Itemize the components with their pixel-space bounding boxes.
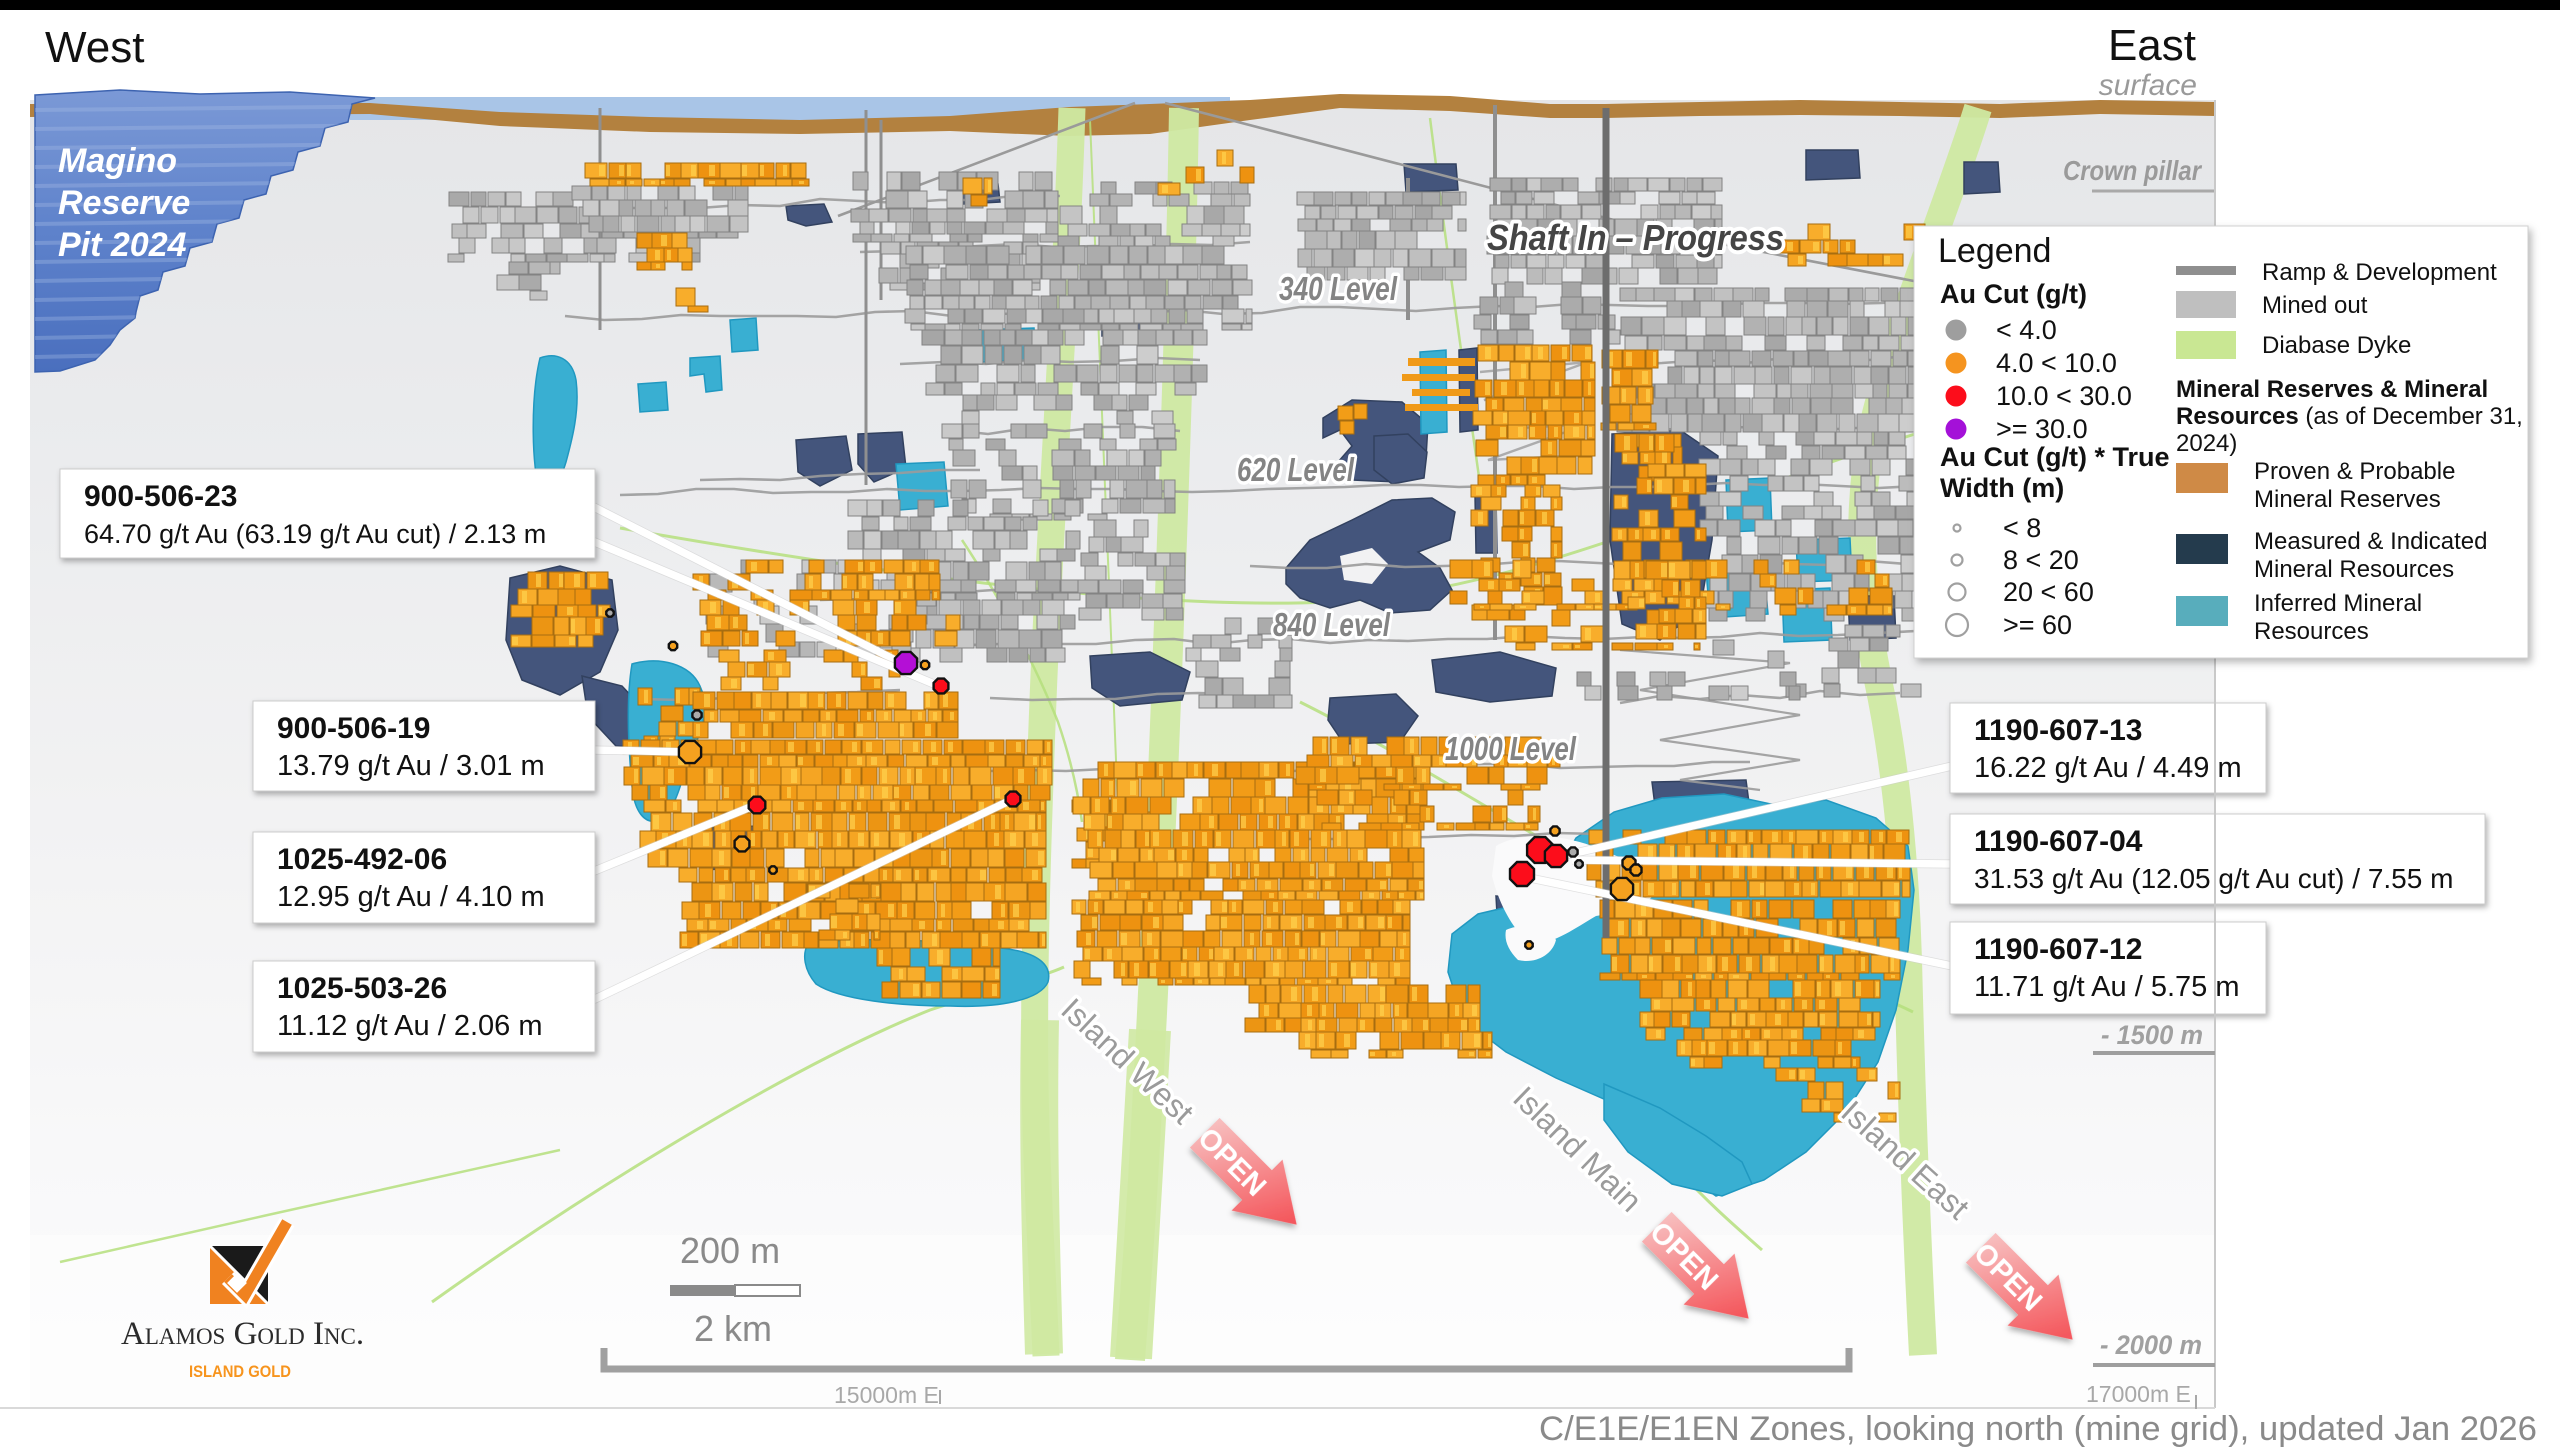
- svg-text:1190-607-13: 1190-607-13: [1974, 714, 2143, 747]
- svg-text:Resources: Resources: [2254, 618, 2369, 645]
- svg-text:1190-607-04: 1190-607-04: [1974, 825, 2143, 858]
- svg-text:620 Level: 620 Level: [1237, 451, 1355, 488]
- svg-text:East: East: [2108, 21, 2196, 70]
- svg-text:2024): 2024): [2176, 430, 2237, 457]
- svg-text:2 km: 2 km: [694, 1308, 772, 1349]
- svg-text:12.95 g/t Au / 4.10 m: 12.95 g/t Au / 4.10 m: [277, 881, 545, 913]
- svg-text:10.0 < 30.0: 10.0 < 30.0: [1996, 381, 2132, 411]
- svg-text:Magino: Magino: [58, 142, 177, 180]
- svg-text:West: West: [45, 23, 144, 72]
- svg-text:16.22 g/t Au / 4.49 m: 16.22 g/t Au / 4.49 m: [1974, 752, 2242, 784]
- svg-text:Resources (as of December 31,: Resources (as of December 31,: [2176, 403, 2523, 430]
- svg-text:900-506-19: 900-506-19: [277, 712, 430, 745]
- svg-text:64.70 g/t Au (63.19 g/t Au cut: 64.70 g/t Au (63.19 g/t Au cut) / 2.13 m: [84, 519, 546, 549]
- svg-text:15000m E: 15000m E: [834, 1382, 939, 1408]
- svg-text:Diabase Dyke: Diabase Dyke: [2262, 332, 2411, 359]
- svg-text:11.12 g/t Au / 2.06 m: 11.12 g/t Au / 2.06 m: [277, 1010, 542, 1042]
- svg-text:17000m E: 17000m E: [2086, 1381, 2191, 1407]
- svg-text:8 < 20: 8 < 20: [2003, 545, 2079, 575]
- svg-text:Mineral Reserves & Mineral: Mineral Reserves & Mineral: [2176, 376, 2488, 403]
- svg-text:Pit 2024: Pit 2024: [58, 226, 187, 264]
- svg-text:Legend: Legend: [1938, 232, 2051, 270]
- svg-text:< 4.0: < 4.0: [1996, 315, 2057, 345]
- svg-text:Inferred Mineral: Inferred Mineral: [2254, 590, 2422, 617]
- svg-text:< 8: < 8: [2003, 513, 2041, 543]
- svg-text:Reserve: Reserve: [58, 184, 190, 222]
- svg-text:1000 Level: 1000 Level: [1445, 730, 1577, 767]
- svg-text:Mineral Resources: Mineral Resources: [2254, 556, 2454, 583]
- svg-text:Proven & Probable: Proven & Probable: [2254, 458, 2455, 485]
- svg-text:1025-503-26: 1025-503-26: [277, 972, 447, 1005]
- svg-text:200 m: 200 m: [680, 1230, 780, 1271]
- svg-text:1025-492-06: 1025-492-06: [277, 843, 447, 876]
- svg-text:13.79 g/t Au / 3.01 m: 13.79 g/t Au / 3.01 m: [277, 750, 545, 782]
- svg-text:11.71 g/t Au / 5.75 m: 11.71 g/t Au / 5.75 m: [1974, 971, 2239, 1003]
- svg-text:ISLAND GOLD: ISLAND GOLD: [189, 1362, 291, 1381]
- svg-text:Au Cut (g/t): Au Cut (g/t): [1940, 279, 2087, 309]
- svg-text:900-506-23: 900-506-23: [84, 480, 237, 513]
- svg-text:>= 30.0: >= 30.0: [1996, 414, 2088, 444]
- svg-text:surface: surface: [2099, 69, 2197, 102]
- svg-text:1190-607-12: 1190-607-12: [1974, 933, 2143, 966]
- svg-text:20 < 60: 20 < 60: [2003, 577, 2094, 607]
- svg-text:31.53 g/t Au (12.05 g/t Au cut: 31.53 g/t Au (12.05 g/t Au cut) / 7.55 m: [1974, 863, 2453, 894]
- svg-text:C/E1E/E1EN Zones, looking nort: C/E1E/E1EN Zones, looking north (mine gr…: [1539, 1410, 2537, 1448]
- svg-text:Alamos Gold Inc.: Alamos Gold Inc.: [121, 1316, 364, 1352]
- svg-text:4.0 < 10.0: 4.0 < 10.0: [1996, 348, 2117, 378]
- svg-text:Width (m): Width (m): [1940, 473, 2064, 503]
- svg-text:- 2000 m: - 2000 m: [2100, 1330, 2202, 1360]
- svg-text:Measured & Indicated: Measured & Indicated: [2254, 528, 2487, 555]
- svg-text:Au Cut (g/t) * True: Au Cut (g/t) * True: [1940, 442, 2169, 472]
- svg-text:- 1500 m: - 1500 m: [2101, 1020, 2203, 1050]
- svg-text:Mineral Reserves: Mineral Reserves: [2254, 486, 2441, 513]
- svg-text:840 Level: 840 Level: [1273, 606, 1391, 643]
- svg-text:Crown pillar: Crown pillar: [2063, 155, 2203, 186]
- svg-text:Mined out: Mined out: [2262, 292, 2368, 319]
- svg-text:Ramp & Development: Ramp & Development: [2262, 259, 2497, 286]
- svg-text:340 Level: 340 Level: [1279, 270, 1398, 307]
- svg-text:>= 60: >= 60: [2003, 610, 2072, 640]
- svg-text:Shaft In – Progress: Shaft In – Progress: [1487, 217, 1784, 258]
